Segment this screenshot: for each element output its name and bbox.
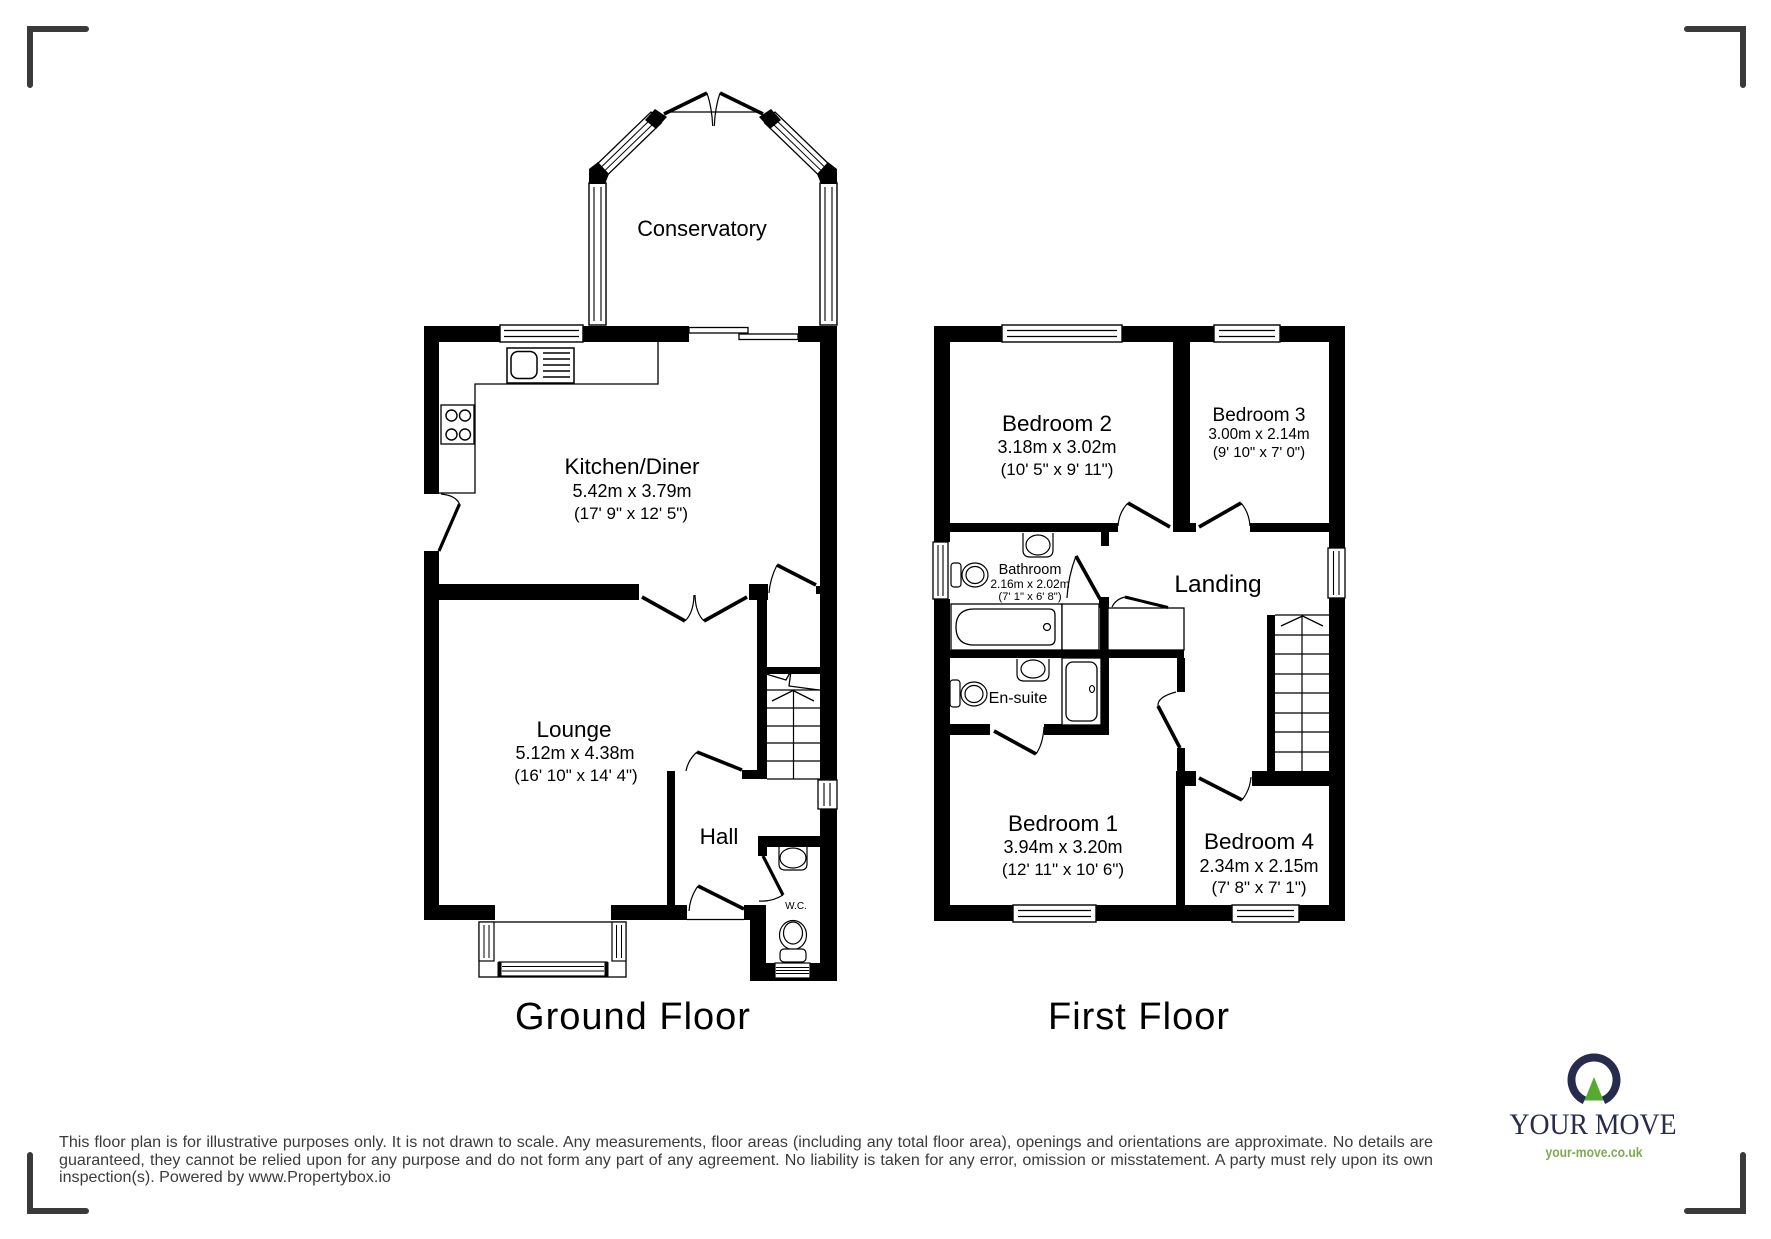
svg-text:Conservatory: Conservatory [637,216,767,241]
svg-text:En-suite: En-suite [989,690,1048,707]
svg-text:(12' 11" x 10' 6"): (12' 11" x 10' 6") [1002,860,1124,879]
svg-text:Bedroom 2: Bedroom 2 [1002,411,1112,436]
svg-text:(16' 10" x 14' 4"): (16' 10" x 14' 4") [514,766,637,785]
svg-text:Hall: Hall [700,824,739,849]
svg-text:3.94m x 3.20m: 3.94m x 3.20m [1003,837,1122,857]
svg-text:Bathroom: Bathroom [999,562,1062,578]
svg-text:First Floor: First Floor [1048,996,1230,1038]
svg-text:Kitchen/Diner: Kitchen/Diner [564,454,700,479]
svg-text:5.12m x 4.38m: 5.12m x 4.38m [515,743,634,763]
svg-text:Lounge: Lounge [536,717,611,742]
svg-text:Bedroom 4: Bedroom 4 [1204,829,1314,854]
svg-text:3.18m x 3.02m: 3.18m x 3.02m [997,437,1116,457]
svg-text:3.00m x 2.14m: 3.00m x 2.14m [1208,426,1309,443]
svg-text:(17' 9" x 12' 5"): (17' 9" x 12' 5") [574,504,688,523]
svg-text:(7' 1" x 6' 8"): (7' 1" x 6' 8") [998,591,1061,603]
svg-text:2.16m x 2.02m: 2.16m x 2.02m [990,577,1069,591]
svg-text:(9' 10" x 7' 0"): (9' 10" x 7' 0") [1213,444,1305,461]
svg-text:5.42m x 3.79m: 5.42m x 3.79m [572,481,691,501]
svg-text:2.34m x 2.15m: 2.34m x 2.15m [1199,856,1318,876]
svg-text:Ground Floor: Ground Floor [515,996,751,1038]
svg-text:(7' 8" x 7' 1"): (7' 8" x 7' 1") [1211,878,1306,897]
svg-text:Bedroom 3: Bedroom 3 [1213,405,1306,426]
svg-text:YOUR MOVE: YOUR MOVE [1510,1108,1677,1141]
svg-text:Bedroom 1: Bedroom 1 [1008,811,1118,836]
svg-text:(10' 5" x 9' 11"): (10' 5" x 9' 11") [1001,460,1114,479]
svg-text:W.C.: W.C. [785,901,807,912]
svg-text:your-move.co.uk: your-move.co.uk [1546,1145,1643,1160]
svg-text:Landing: Landing [1174,571,1261,598]
